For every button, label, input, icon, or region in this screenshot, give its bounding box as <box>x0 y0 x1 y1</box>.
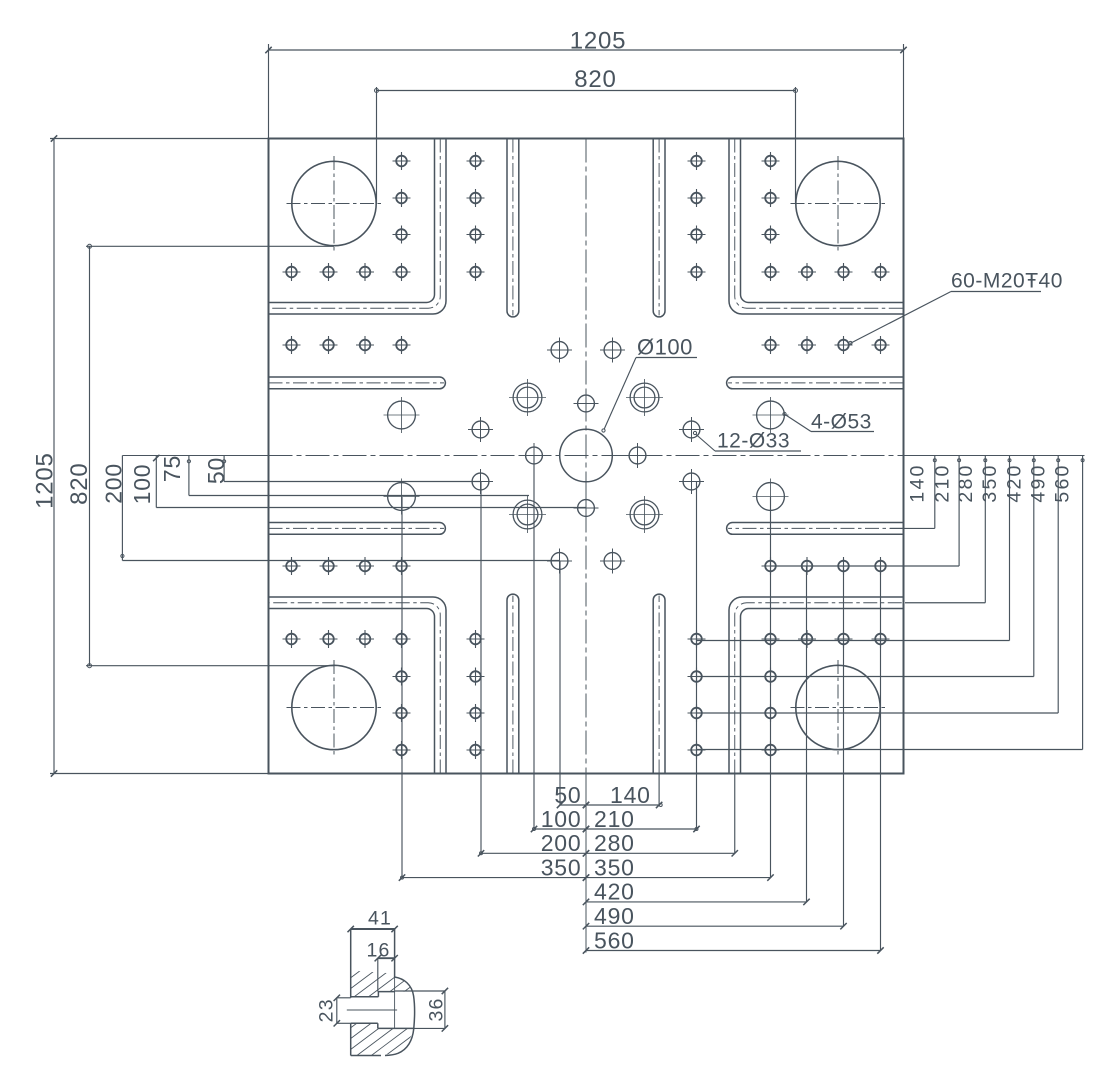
svg-text:210: 210 <box>932 463 954 502</box>
svg-text:140: 140 <box>610 782 651 808</box>
svg-text:280: 280 <box>594 830 635 856</box>
svg-text:490: 490 <box>1028 463 1050 502</box>
svg-text:50: 50 <box>554 782 581 808</box>
svg-text:60-M20Ŧ40: 60-M20Ŧ40 <box>951 270 1063 293</box>
svg-text:560: 560 <box>1052 463 1074 502</box>
svg-text:200: 200 <box>541 830 582 856</box>
svg-text:820: 820 <box>574 66 616 93</box>
svg-text:4-Ø53: 4-Ø53 <box>811 411 872 434</box>
svg-text:560: 560 <box>594 927 635 953</box>
svg-text:280: 280 <box>955 463 977 502</box>
svg-text:50: 50 <box>203 457 229 484</box>
svg-text:100: 100 <box>129 464 155 505</box>
svg-text:210: 210 <box>594 806 635 832</box>
svg-text:200: 200 <box>101 463 127 504</box>
svg-text:420: 420 <box>594 879 635 905</box>
svg-text:16: 16 <box>366 940 390 962</box>
svg-text:36: 36 <box>426 997 448 1021</box>
svg-text:1205: 1205 <box>570 27 627 54</box>
svg-text:350: 350 <box>979 463 1001 502</box>
svg-text:75: 75 <box>159 455 185 482</box>
svg-text:820: 820 <box>66 462 93 504</box>
svg-text:41: 41 <box>368 908 392 930</box>
svg-text:490: 490 <box>594 903 635 929</box>
svg-text:350: 350 <box>541 854 582 880</box>
svg-text:12-Ø33: 12-Ø33 <box>717 430 790 453</box>
svg-text:Ø100: Ø100 <box>637 335 693 360</box>
svg-text:23: 23 <box>316 998 338 1022</box>
svg-text:100: 100 <box>541 806 582 832</box>
svg-text:1205: 1205 <box>31 452 58 509</box>
svg-text:140: 140 <box>907 463 929 502</box>
svg-text:350: 350 <box>594 854 635 880</box>
svg-text:420: 420 <box>1004 463 1026 502</box>
